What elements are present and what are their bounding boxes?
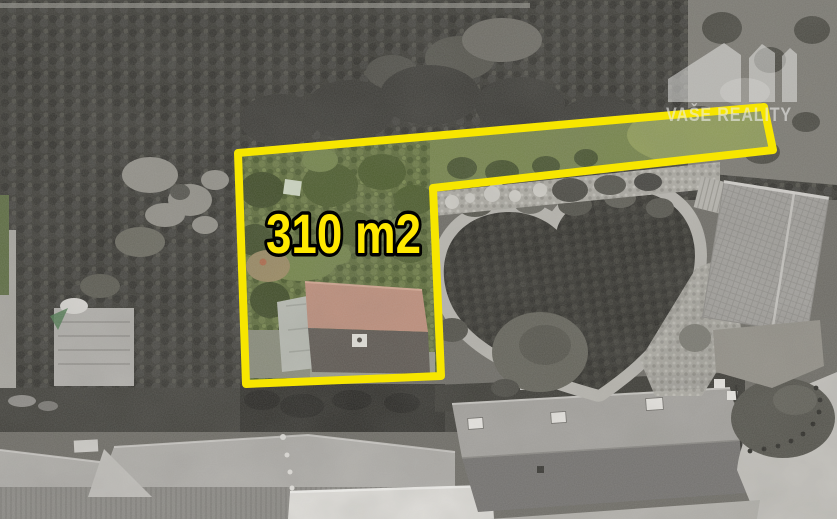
aerial-photo: 310 m2 VAŠE REALITY xyxy=(0,0,837,519)
scene-svg: 310 m2 VAŠE REALITY xyxy=(0,0,837,519)
watermark-text: VAŠE REALITY xyxy=(666,104,792,126)
area-label: 310 m2 xyxy=(266,202,421,265)
